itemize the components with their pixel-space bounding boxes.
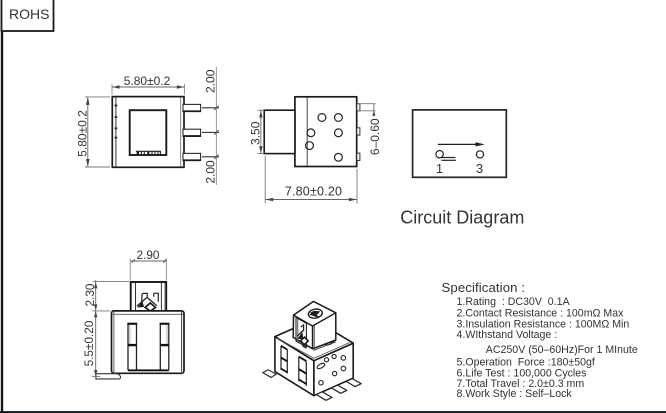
svg-text:8.Work Style : Self–Lock: 8.Work Style : Self–Lock xyxy=(457,388,573,400)
svg-text:5.80±0.2: 5.80±0.2 xyxy=(75,110,89,157)
svg-text:Circuit Diagram: Circuit Diagram xyxy=(400,207,524,227)
svg-text:2.00: 2.00 xyxy=(203,160,217,184)
svg-text:7.80±0.20: 7.80±0.20 xyxy=(285,184,342,198)
svg-text:2.90: 2.90 xyxy=(137,248,160,262)
svg-text:3.50: 3.50 xyxy=(249,121,263,145)
svg-text:5.80±0.2: 5.80±0.2 xyxy=(124,74,171,88)
svg-text:1: 1 xyxy=(436,161,443,176)
svg-text:6–0.60: 6–0.60 xyxy=(368,118,382,155)
svg-text:5.5±0.20: 5.5±0.20 xyxy=(82,320,96,366)
svg-text:Specification :: Specification : xyxy=(442,280,526,295)
svg-text:2.00: 2.00 xyxy=(203,69,217,93)
svg-text:ROHS: ROHS xyxy=(9,6,49,22)
svg-text:4.WIthstand Voltage :: 4.WIthstand Voltage : xyxy=(457,329,558,341)
svg-text:3: 3 xyxy=(476,161,483,176)
svg-text:AC250V (50–60Hz)For 1 MInute: AC250V (50–60Hz)For 1 MInute xyxy=(486,344,638,356)
svg-text:2.30: 2.30 xyxy=(83,283,97,306)
